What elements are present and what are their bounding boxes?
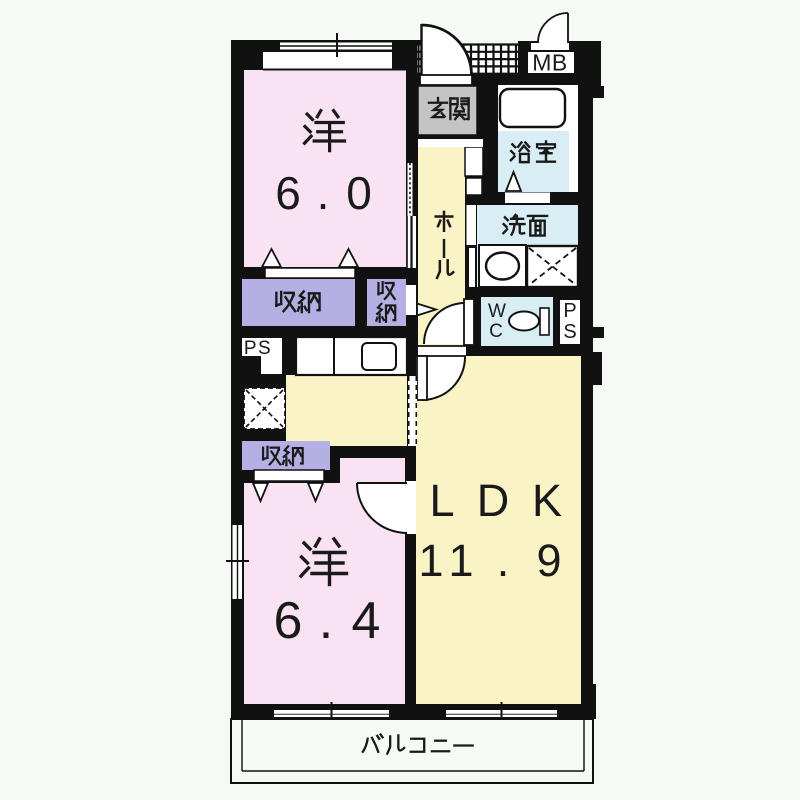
svg-text:1: 1 <box>448 535 473 586</box>
svg-text:4: 4 <box>352 592 381 650</box>
svg-text:.: . <box>317 167 330 219</box>
svg-text:S: S <box>563 321 576 343</box>
svg-text:1: 1 <box>418 535 443 586</box>
svg-text:9: 9 <box>536 535 561 586</box>
svg-text:K: K <box>532 475 562 526</box>
svg-text:6: 6 <box>274 592 303 650</box>
svg-text:P: P <box>563 300 576 322</box>
svg-text:W: W <box>488 301 506 322</box>
svg-text:C: C <box>489 321 503 342</box>
svg-text:PS: PS <box>244 338 272 359</box>
svg-text:D: D <box>477 475 510 526</box>
svg-text:.: . <box>497 535 510 586</box>
svg-text:.: . <box>319 592 333 650</box>
svg-text:0: 0 <box>346 167 372 219</box>
svg-text:MB: MB <box>532 50 568 76</box>
svg-text:6: 6 <box>275 167 301 219</box>
svg-text:L: L <box>429 475 454 526</box>
